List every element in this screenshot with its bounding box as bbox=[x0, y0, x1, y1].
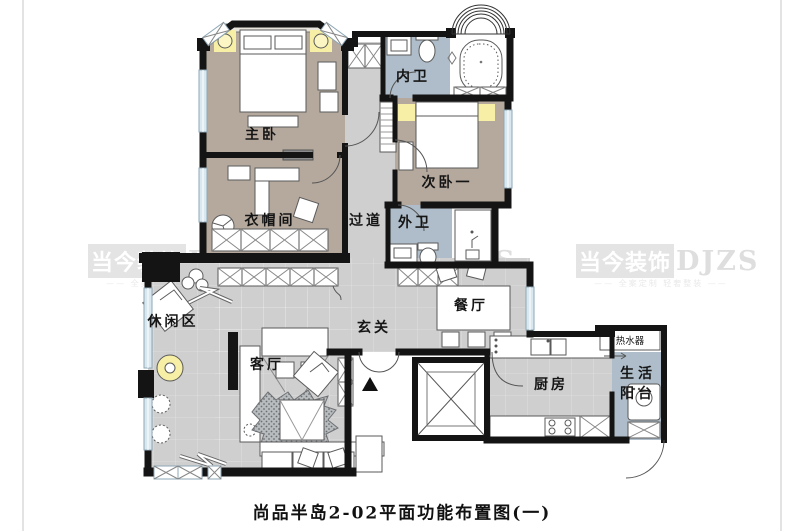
entry-door bbox=[359, 352, 399, 391]
window-leisure-left-2 bbox=[144, 398, 152, 450]
window-dining-right bbox=[526, 287, 534, 330]
room-label-dining: 餐厅 bbox=[454, 295, 488, 315]
window-bedroom2-right bbox=[504, 110, 512, 188]
wardrobe-closet bbox=[212, 229, 328, 251]
room-label-foyer: 玄关 bbox=[357, 317, 391, 337]
room-label-outer-bath: 外卫 bbox=[398, 212, 432, 232]
label-water-heater: 热水器 bbox=[616, 333, 645, 347]
room-label-corridor: 过道 bbox=[349, 210, 383, 230]
plan-caption: 尚品半岛2-02平面功能布置图(一) bbox=[253, 499, 552, 524]
room-label-balcony-line1: 生活 bbox=[620, 363, 656, 383]
hall-storage-cabinets bbox=[218, 268, 458, 286]
room-label-cloakroom: 衣帽间 bbox=[245, 210, 296, 230]
room-label-living: 客厅 bbox=[250, 354, 284, 374]
floor-plan-page: 当今装饰DJZS —— 全案定制 轻奢整装 —— 当今装饰DJZS —— 全案定… bbox=[0, 0, 805, 531]
room-label-balcony-line2: 阳台 bbox=[620, 383, 656, 403]
room-label-second-bedroom: 次卧一 bbox=[422, 172, 473, 192]
door-balcony bbox=[626, 440, 664, 478]
elevator bbox=[415, 360, 487, 438]
window-boxes-bottom-left bbox=[154, 466, 221, 479]
room-label-master-bedroom: 主卧 bbox=[245, 124, 279, 144]
room-label-kitchen: 厨房 bbox=[534, 374, 568, 394]
window-cloakroom-left bbox=[199, 168, 207, 222]
bay-window bbox=[452, 5, 510, 34]
window-master-left bbox=[199, 70, 207, 132]
room-label-inner-bath: 内卫 bbox=[396, 66, 430, 86]
room-label-leisure: 休闲区 bbox=[148, 311, 199, 331]
